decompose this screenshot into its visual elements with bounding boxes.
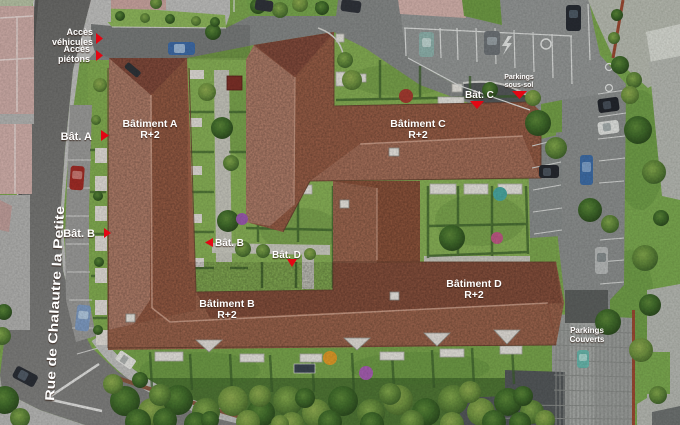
svg-text:Accès: Accès <box>63 44 90 54</box>
svg-text:R+2: R+2 <box>464 289 484 301</box>
svg-text:Bât. C: Bât. C <box>465 90 494 101</box>
svg-text:Parkings: Parkings <box>570 326 604 335</box>
svg-text:R+2: R+2 <box>217 309 237 321</box>
svg-text:Bât. A: Bât. A <box>61 131 92 143</box>
svg-text:R+2: R+2 <box>408 129 428 141</box>
svg-text:Bât. B: Bât. B <box>63 228 95 240</box>
svg-text:Couverts: Couverts <box>570 335 605 344</box>
svg-text:Bât. B: Bât. B <box>215 238 244 249</box>
svg-text:piétons: piétons <box>58 54 90 64</box>
svg-text:Accès: Accès <box>66 27 93 37</box>
svg-text:Parkings: Parkings <box>504 74 534 81</box>
svg-text:R+2: R+2 <box>140 129 160 141</box>
svg-text:sous-sol: sous-sol <box>505 82 534 89</box>
